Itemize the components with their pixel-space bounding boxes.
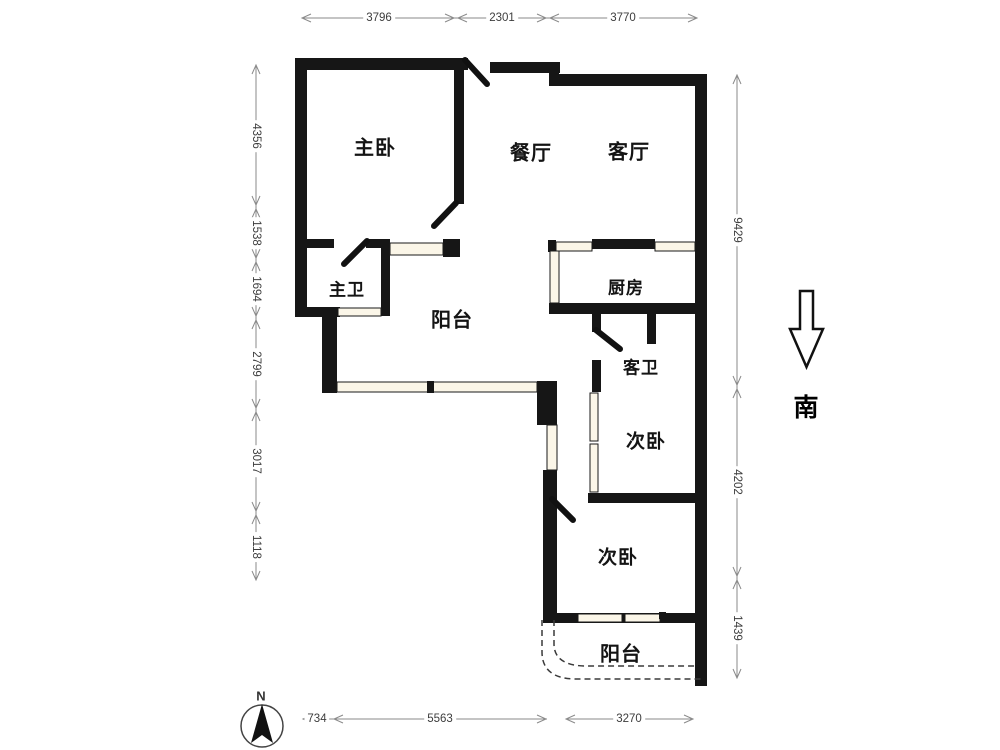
dimension-bottom-2: 5563	[424, 713, 456, 725]
room-label-balcony-south: 阳台	[600, 638, 642, 667]
dimension-top-1: 3796	[363, 12, 395, 24]
wall	[300, 239, 334, 248]
compass-north-label: N	[256, 689, 265, 704]
wall	[381, 239, 390, 316]
dimension-left-3: 1694	[250, 273, 262, 305]
window	[655, 242, 695, 251]
dimension-bottom-1: 734	[304, 713, 329, 725]
wall	[549, 74, 707, 86]
south-arrow	[790, 291, 823, 367]
wall	[543, 470, 557, 617]
wall	[549, 303, 695, 314]
room-label-dining-room: 餐厅	[510, 137, 552, 166]
window	[338, 308, 381, 316]
wall	[537, 381, 557, 425]
dimension-left-1: 4356	[250, 120, 262, 152]
dimension-left-6: 1118	[250, 532, 262, 562]
window	[590, 393, 598, 441]
room-label-kitchen: 厨房	[608, 274, 644, 299]
master-bedroom-door	[434, 203, 456, 226]
wall	[295, 58, 468, 70]
window-mullion	[427, 381, 434, 393]
window	[578, 614, 622, 622]
dimension-left-4: 2799	[250, 348, 262, 380]
wall	[592, 360, 601, 392]
room-label-balcony-north: 阳台	[431, 304, 473, 333]
master-bathroom-door	[344, 241, 367, 264]
compass	[241, 704, 283, 747]
wall	[443, 239, 460, 257]
floor-plan-page: 主卧 餐厅 客厅 主卫 阳台 厨房 客卫 次卧 次卧 阳台 南 N 3796 2…	[0, 0, 1000, 750]
wall	[695, 74, 707, 686]
window	[390, 243, 443, 255]
room-label-living-room: 客厅	[608, 136, 650, 165]
guest-bathroom-door	[596, 330, 620, 349]
dimension-top-3: 3770	[607, 12, 639, 24]
window	[337, 382, 537, 392]
window	[550, 251, 559, 303]
south-arrow-icon	[790, 291, 823, 367]
wall	[295, 58, 307, 316]
compass-needle-icon	[251, 704, 273, 743]
room-label-master-bedroom: 主卧	[354, 132, 396, 161]
wall	[592, 239, 655, 249]
wall	[588, 493, 697, 503]
dimension-bottom-3: 3270	[613, 713, 645, 725]
window-mullion	[659, 612, 666, 619]
window	[556, 242, 592, 251]
wall	[548, 240, 556, 252]
room-label-guest-bathroom: 客卫	[623, 354, 659, 379]
window	[625, 614, 660, 622]
dimension-top-2: 2301	[486, 12, 518, 24]
room-label-second-bedroom-upper: 次卧	[626, 427, 666, 454]
south-label: 南	[793, 388, 818, 424]
floor-plan-drawing	[0, 0, 1000, 750]
dimension-right-3: 1439	[731, 612, 743, 644]
dimension-left-2: 1538	[250, 217, 262, 249]
window	[590, 444, 598, 492]
dimension-left-5: 3017	[250, 445, 262, 477]
wall	[322, 307, 337, 393]
wall	[454, 62, 464, 204]
entrance-door	[465, 60, 487, 84]
dimension-right-1: 9429	[731, 214, 743, 246]
room-label-master-bathroom: 主卫	[329, 276, 365, 301]
dimension-right-2: 4202	[731, 466, 743, 498]
window	[547, 425, 557, 470]
room-label-second-bedroom-lower: 次卧	[598, 543, 638, 570]
wall	[647, 314, 656, 344]
